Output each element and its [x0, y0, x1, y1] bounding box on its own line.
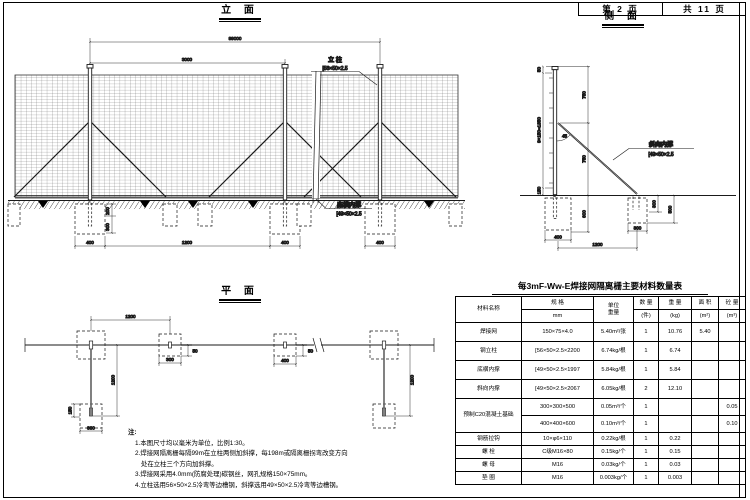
cell-qty: 1: [634, 459, 659, 472]
cell-qty: 1: [634, 416, 659, 433]
dim-span: 1200: [182, 240, 193, 245]
cell-unit: 6.05kg/根: [594, 380, 634, 399]
cell-qty: 1: [634, 342, 659, 361]
angle-label: 45: [562, 134, 568, 139]
cell-weight: 5.84: [659, 361, 692, 380]
col-unit-weight: (kg): [659, 310, 692, 323]
title-underline: [602, 24, 644, 26]
cell-name: 螺 栓: [456, 446, 522, 459]
unit-weight-line1: 单位: [594, 303, 633, 310]
col-header-unit-weight: 单位 重量: [594, 297, 634, 323]
table-row: 斜向内撑[49×50×2.5×20676.05kg/根212.10: [456, 380, 746, 399]
dim-depth-a: 200: [105, 207, 110, 215]
note-item: 1.本图尺寸均以毫米为单位，比例1:30。: [135, 439, 363, 450]
col-header-area: 面 积: [692, 297, 719, 310]
col-unit-area: (m²): [692, 310, 719, 323]
cell-area: [692, 399, 719, 416]
cell-qty: 1: [634, 446, 659, 459]
cell-conc: [719, 342, 746, 361]
cell-area: [692, 416, 719, 433]
plan-view: 1200 300 50 1200 150 300 400 50 1200: [25, 314, 434, 434]
dim-fr-d2: 500: [668, 205, 673, 213]
cell-conc: 0.05: [719, 399, 746, 416]
dim-found3: 400: [376, 240, 384, 245]
post-label: 立 柱: [328, 56, 342, 64]
cell-name: 钢立柱: [456, 342, 522, 361]
side-foundations: [545, 198, 647, 230]
cell-qty: 1: [634, 323, 659, 342]
plan-dim-offset-l: 50: [192, 349, 198, 354]
cell-weight: [659, 416, 692, 433]
cell-spec: M16: [522, 472, 594, 485]
dim-found1: 400: [86, 240, 94, 245]
cell-weight: 6.74: [659, 342, 692, 361]
notes-block: 注: 1.本图尺寸均以毫米为单位，比例1:30。 2.焊接网隔离栅每隔99m在立…: [128, 428, 363, 492]
plan-title: 平 面: [219, 287, 261, 303]
cell-unit: 6.74kg/根: [594, 342, 634, 361]
cell-spec: M16: [522, 459, 594, 472]
cell-spec: 400×400×600: [522, 416, 594, 433]
plan-post-marks: [89, 341, 385, 416]
cell-area: [692, 433, 719, 446]
cell-unit: 5.84kg/根: [594, 361, 634, 380]
col-header-conc: 砼 量: [719, 297, 746, 310]
cell-area: [692, 472, 719, 485]
table-row: 螺 栓C级M16×800.15kg/个10.15: [456, 446, 746, 459]
cell-weight: 0.22: [659, 433, 692, 446]
cell-unit: 0.03kg/个: [594, 459, 634, 472]
cell-name: 焊接网: [456, 323, 522, 342]
table-row: 钢立柱[56×50×2.5×22006.74kg/根16.74: [456, 342, 746, 361]
cell-qty: 1: [634, 433, 659, 446]
col-header-weight: 重 量: [659, 297, 692, 310]
title-underline: [219, 299, 261, 301]
cell-name: 螺 母: [456, 459, 522, 472]
side-title-text: 侧 面: [604, 11, 642, 22]
elevation-title-text: 立 面: [221, 5, 259, 16]
dim-embed: 600: [582, 210, 587, 218]
dim-depth-b: 300: [105, 223, 110, 231]
brace-label: 斜向内撑: [648, 141, 673, 149]
cell-qty: 1: [634, 361, 659, 380]
plan-dim-right-sq: 400: [281, 358, 289, 363]
col-unit-conc: (m³): [719, 310, 746, 323]
cell-unit: 0.05m³/个: [594, 399, 634, 416]
col-header-spec: 规 格: [522, 297, 594, 310]
plan-dim-bot-sq: 300: [87, 426, 95, 431]
cell-unit: 0.003kg/个: [594, 472, 634, 485]
cell-area: [692, 361, 719, 380]
cell-conc: [719, 446, 746, 459]
cell-qty: 1: [634, 399, 659, 416]
dim-found-r: 300: [634, 226, 642, 231]
dim-total: 99000: [229, 36, 242, 41]
dim-lower: 750: [582, 155, 587, 163]
cell-area: [692, 342, 719, 361]
col-unit-qty: (件): [634, 310, 659, 323]
side-brace-core: [558, 123, 637, 194]
note-item: 2.焊接网隔离栅每隔99m在立柱两侧加斜撑，每198m或隔离栅拐弯改变方向: [135, 449, 363, 460]
rail-label: 底横内撑: [337, 201, 361, 209]
plan-dim-offset-r: 50: [308, 349, 314, 354]
cell-conc: [719, 472, 746, 485]
cell-name: 钢筋拉钩: [456, 433, 522, 446]
cell-unit: 0.15kg/个: [594, 446, 634, 459]
plan-dim-vert-l: 1200: [111, 374, 116, 385]
cell-unit: 0.10m³/个: [594, 416, 634, 433]
plan-dim-top-span: 1200: [125, 314, 136, 319]
cell-qty: 1: [634, 472, 659, 485]
cell-area: 5.40: [692, 323, 719, 342]
cell-conc: [719, 323, 746, 342]
cell-conc: [719, 433, 746, 446]
title-underline-2: [219, 302, 261, 303]
cell-name: 预制C20混凝土基础: [456, 399, 522, 433]
table-row: 底横内撑[49×50×2.5×19975.84kg/根15.84: [456, 361, 746, 380]
unit-weight-line2: 重量: [594, 310, 633, 317]
cell-weight: 0.15: [659, 446, 692, 459]
table-title-text: 每3mF-Ww-E焊接网隔离栅主要材料数量表: [518, 281, 682, 291]
cell-area: [692, 380, 719, 399]
dim-upper: 750: [582, 91, 587, 99]
cell-unit: 0.22kg/根: [594, 433, 634, 446]
cell-conc: [719, 459, 746, 472]
plan-dim-stub: 150: [68, 406, 73, 414]
dim-mesh-pitch: 9×150=1350: [537, 117, 542, 143]
table-row: 钢筋拉钩10×φ6×1100.22kg/根10.22: [456, 433, 746, 446]
cell-weight: 10.76: [659, 323, 692, 342]
col-header-qty: 数 量: [634, 297, 659, 310]
side-view: 45: [520, 67, 736, 252]
cell-weight: [659, 399, 692, 416]
table-row: 焊接网150×75×4.05.40m²/张110.765.40: [456, 323, 746, 342]
side-title: 侧 面: [602, 12, 644, 28]
table-row: 垫 圈M160.003kg/个10.003: [456, 472, 746, 485]
dim-found-l: 400: [554, 235, 562, 240]
table-title: 每3mF-Ww-E焊接网隔离栅主要材料数量表: [452, 280, 748, 297]
dim-side-span: 1200: [592, 242, 603, 247]
cell-spec: [56×50×2.5×2200: [522, 342, 594, 361]
table-header-row: 材料名称 规 格 单位 重量 数 量 重 量 面 积 砼 量: [456, 297, 746, 310]
title-underline: [219, 18, 261, 20]
cell-conc: 0.10: [719, 416, 746, 433]
dim-fr-d1: 300: [652, 200, 657, 208]
plan-dimensions: [71, 316, 413, 434]
note-item: 3.焊接网采用4.0mm(防腐处理)碳钢丝，网孔规格150×75mm。: [135, 470, 363, 481]
cell-conc: [719, 380, 746, 399]
cell-spec: [49×50×2.5×1997: [522, 361, 594, 380]
cell-qty: 2: [634, 380, 659, 399]
cell-spec: 300×300×500: [522, 399, 594, 416]
col-header-name: 材料名称: [456, 297, 522, 323]
cell-name: 斜向内撑: [456, 380, 522, 399]
table-row: 螺 母M160.03kg/个10.03: [456, 459, 746, 472]
elevation-view: 99000 3000 400 1200 400 400 200 300 立 柱 …: [8, 36, 465, 249]
col-unit-spec: mm: [522, 310, 594, 323]
cell-conc: [719, 361, 746, 380]
note-item: 4.立柱选用56×50×2.5冷弯等边槽钢，斜撑选用49×50×2.5冷弯等边槽…: [135, 481, 363, 492]
title-underline-2: [602, 27, 644, 28]
plan-title-text: 平 面: [221, 286, 259, 297]
mesh-panel: [15, 75, 458, 197]
side-mesh-ticks: [549, 78, 553, 183]
cell-weight: 0.03: [659, 459, 692, 472]
cell-area: [692, 446, 719, 459]
note-item: 处在立柱三个方向加斜撑。: [141, 460, 363, 471]
cell-unit: 5.40m²/张: [594, 323, 634, 342]
cell-weight: 0.003: [659, 472, 692, 485]
notes-label: 注:: [128, 429, 137, 436]
elevation-title: 立 面: [219, 6, 261, 22]
dim-bottom-gap: 150: [537, 186, 542, 194]
materials-table: 材料名称 规 格 单位 重量 数 量 重 量 面 积 砼 量 mm (件) (k…: [455, 296, 746, 485]
post-spec: [56×50×2.5: [322, 66, 348, 72]
plan-dim-mid-sq: 300: [166, 357, 174, 362]
title-underline-2: [219, 21, 261, 22]
cell-spec: 10×φ6×110: [522, 433, 594, 446]
cell-name: 底横内撑: [456, 361, 522, 380]
dim-found2: 400: [281, 240, 289, 245]
cell-area: [692, 459, 719, 472]
dim-top-offset: 50: [537, 67, 542, 73]
drawing-sheet: 第 2 页 共 11 页: [0, 0, 750, 500]
table-row: 预制C20混凝土基础300×300×5000.05m³/个10.05: [456, 399, 746, 416]
cell-spec: 150×75×4.0: [522, 323, 594, 342]
rail-spec: [49×50×2.5: [336, 212, 362, 218]
cell-name: 垫 圈: [456, 472, 522, 485]
dim-panel: 3000: [182, 57, 193, 62]
cell-weight: 12.10: [659, 380, 692, 399]
cell-spec: [49×50×2.5×2067: [522, 380, 594, 399]
cell-spec: C级M16×80: [522, 446, 594, 459]
side-post: [552, 67, 558, 195]
plan-dim-vert-r: 1200: [410, 374, 415, 385]
brace-spec: [49×50×2.5: [648, 152, 674, 158]
